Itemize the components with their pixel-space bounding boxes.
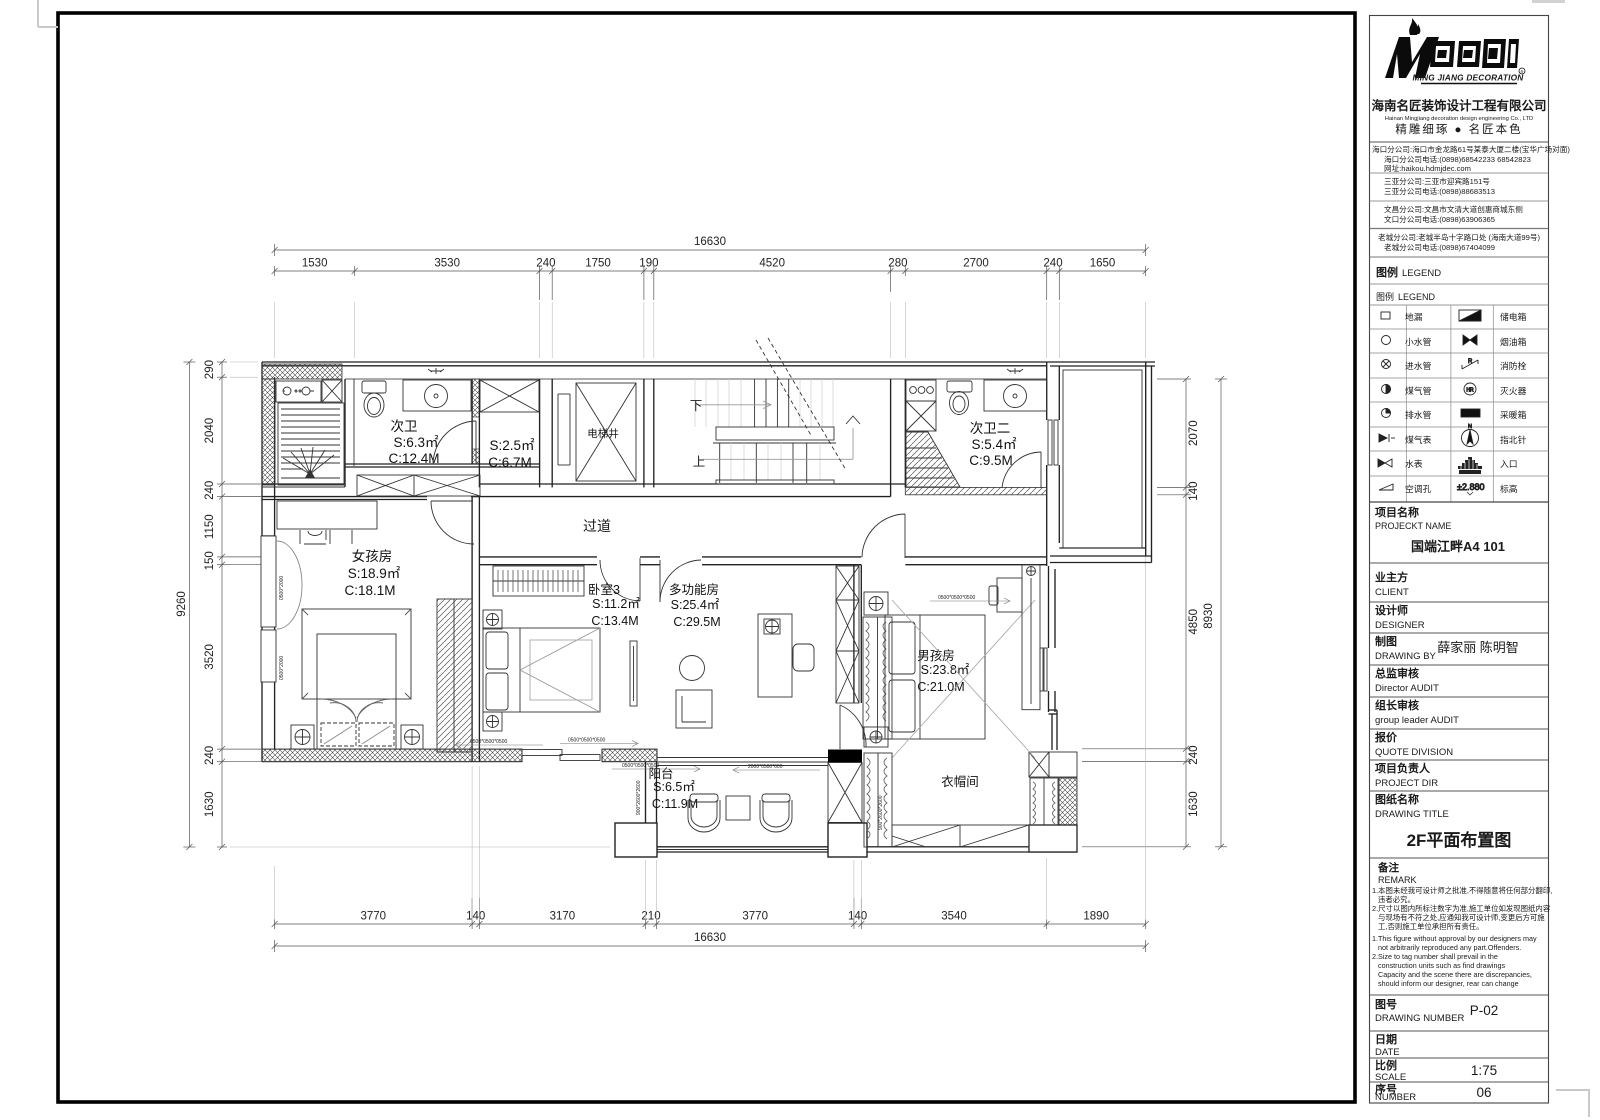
- svg-text:下: 下: [690, 399, 703, 413]
- svg-text:老城分公司电话:(0898)67404099: 老城分公司电话:(0898)67404099: [1384, 242, 1495, 252]
- svg-text:R: R: [1468, 359, 1473, 365]
- svg-text:C:6.7M: C:6.7M: [488, 455, 532, 470]
- svg-text:3770: 3770: [742, 911, 768, 923]
- svg-text:240: 240: [204, 481, 216, 500]
- svg-text:1890: 1890: [1083, 911, 1109, 923]
- svg-text:PROJECKT NAME: PROJECKT NAME: [1375, 521, 1451, 531]
- svg-text:DATE: DATE: [1375, 1047, 1400, 1058]
- svg-text:210: 210: [641, 911, 660, 923]
- svg-text:0500*2000: 0500*2000: [279, 656, 285, 680]
- svg-text:0500*0500*0500: 0500*0500*0500: [470, 739, 507, 745]
- svg-text:1630: 1630: [1188, 791, 1200, 817]
- svg-text:group leader AUDIT: group leader AUDIT: [1375, 715, 1459, 726]
- svg-text:精雕细琢 ● 名匠本色: 精雕细琢 ● 名匠本色: [1395, 122, 1522, 136]
- svg-text:16630: 16630: [694, 236, 726, 248]
- svg-text:SCALE: SCALE: [1375, 1072, 1406, 1083]
- svg-text:3520: 3520: [204, 644, 216, 670]
- svg-text:业主方: 业主方: [1375, 570, 1408, 584]
- svg-text:烟油箱: 烟油箱: [1500, 336, 1527, 347]
- svg-text:240: 240: [1188, 746, 1200, 765]
- svg-text:C:13.4M: C:13.4M: [591, 614, 638, 628]
- svg-text:入口: 入口: [1500, 459, 1518, 469]
- svg-text:HR: HR: [1466, 388, 1474, 394]
- svg-text:薛家丽 陈明智: 薛家丽 陈明智: [1437, 640, 1519, 655]
- svg-text:3540: 3540: [941, 911, 967, 923]
- svg-text:DRAWING BY: DRAWING BY: [1375, 651, 1437, 662]
- svg-text:煤气表: 煤气表: [1405, 434, 1432, 445]
- svg-text:衣帽间: 衣帽间: [941, 774, 979, 789]
- svg-text:construction units such as fin: construction units such as find drawings: [1378, 961, 1505, 970]
- svg-text:海南名匠装饰设计工程有限公司: 海南名匠装饰设计工程有限公司: [1371, 98, 1546, 113]
- svg-text:日期: 日期: [1375, 1032, 1397, 1046]
- svg-text:0500*2000: 0500*2000: [279, 576, 285, 600]
- svg-text:240: 240: [204, 746, 216, 765]
- svg-text:项目名称: 项目名称: [1375, 505, 1419, 519]
- svg-text:地漏: 地漏: [1405, 311, 1423, 322]
- svg-text:三亚分公司电话:(0898)88683513: 三亚分公司电话:(0898)88683513: [1384, 186, 1495, 196]
- svg-text:老城分公司:老城半岛十字路口处 (海南大道99号): 老城分公司:老城半岛十字路口处 (海南大道99号): [1378, 232, 1540, 242]
- svg-text:煤气管: 煤气管: [1405, 385, 1432, 396]
- svg-text:2700: 2700: [963, 258, 989, 270]
- svg-text:N: N: [1468, 424, 1472, 430]
- svg-text:违者必究。: 违者必究。: [1378, 895, 1415, 904]
- svg-text:项目负责人: 项目负责人: [1375, 761, 1431, 775]
- svg-text:设计师: 设计师: [1375, 603, 1408, 617]
- svg-text:2.Size to tag number shall pre: 2.Size to tag number shall prevail in th…: [1372, 952, 1498, 961]
- svg-text:MING JIANG DECORATION: MING JIANG DECORATION: [1413, 73, 1525, 83]
- svg-text:C:9.5M: C:9.5M: [969, 453, 1013, 468]
- svg-text:NUMBER: NUMBER: [1375, 1092, 1416, 1103]
- svg-text:S:5.4㎡: S:5.4㎡: [971, 437, 1017, 452]
- svg-text:指北针: 指北针: [1500, 434, 1527, 445]
- svg-text:8930: 8930: [1203, 603, 1215, 629]
- svg-text:Capacity and the scene there a: Capacity and the scene there are discrep…: [1378, 970, 1532, 979]
- svg-text:海口分公司:海口市金龙路61号某泰大厦二楼(宝华广场对面): 海口分公司:海口市金龙路61号某泰大厦二楼(宝华广场对面): [1372, 144, 1570, 154]
- svg-text:卧室3: 卧室3: [588, 582, 620, 597]
- svg-text:1630: 1630: [204, 792, 216, 818]
- svg-text:Director AUDIT: Director AUDIT: [1375, 683, 1439, 694]
- svg-text:文口分公司电话:(0898)63906365: 文口分公司电话:(0898)63906365: [1384, 214, 1495, 224]
- svg-text:3170: 3170: [550, 911, 576, 923]
- svg-text:三亚分公司:三亚市迎宾路151号: 三亚分公司:三亚市迎宾路151号: [1384, 176, 1490, 186]
- svg-text:网址:haikou.hdmjdec.com: 网址:haikou.hdmjdec.com: [1384, 163, 1471, 173]
- svg-text:0500*0500*0500: 0500*0500*0500: [938, 595, 975, 601]
- svg-text:图号: 图号: [1375, 998, 1397, 1011]
- svg-text:DRAWING TITLE: DRAWING TITLE: [1375, 809, 1449, 820]
- svg-text:图例: 图例: [1376, 291, 1394, 302]
- svg-text:与现场有不符之处,应通知我可设计师,变更后方可施: 与现场有不符之处,应通知我可设计师,变更后方可施: [1378, 913, 1545, 922]
- svg-text:电梯井: 电梯井: [587, 427, 619, 440]
- svg-text:240: 240: [1043, 258, 1062, 270]
- svg-text:0500*0500*0500: 0500*0500*0500: [622, 763, 659, 769]
- svg-text:上: 上: [693, 455, 706, 469]
- svg-text:1.本图未经我可设计师之批准,不得随意将任何部分翻印,: 1.本图未经我可设计师之批准,不得随意将任何部分翻印,: [1372, 886, 1552, 895]
- svg-text:S:25.4㎡: S:25.4㎡: [671, 598, 720, 612]
- svg-text:LEGEND: LEGEND: [1398, 292, 1436, 302]
- svg-text:2.尺寸以图内所标注数字为准,施工单位如发现图纸内容: 2.尺寸以图内所标注数字为准,施工单位如发现图纸内容: [1372, 904, 1551, 913]
- svg-text:国端江畔A4 101: 国端江畔A4 101: [1411, 539, 1505, 554]
- svg-text:1650: 1650: [1090, 258, 1116, 270]
- svg-text:900*2600*2600: 900*2600*2600: [878, 795, 884, 830]
- svg-text:3530: 3530: [434, 258, 460, 270]
- svg-text:DESIGNER: DESIGNER: [1375, 620, 1425, 631]
- svg-text:储电箱: 储电箱: [1500, 311, 1527, 322]
- svg-text:多功能房: 多功能房: [669, 582, 719, 597]
- svg-text:灭火器: 灭火器: [1500, 386, 1527, 396]
- svg-text:REMARK: REMARK: [1378, 875, 1417, 885]
- svg-text:组长审核: 组长审核: [1375, 698, 1419, 712]
- svg-text:140: 140: [466, 911, 485, 923]
- svg-text:1:75: 1:75: [1471, 1063, 1497, 1078]
- svg-text:0500*0500*0500: 0500*0500*0500: [568, 738, 605, 744]
- svg-text:LEGEND: LEGEND: [1402, 268, 1441, 279]
- svg-text:小水管: 小水管: [1405, 336, 1432, 347]
- svg-text:P-02: P-02: [1470, 1003, 1499, 1018]
- svg-text:S:11.2㎡: S:11.2㎡: [592, 597, 640, 611]
- svg-text:次卫二: 次卫二: [970, 421, 1011, 436]
- svg-text:Hainan Mingjiang decoration de: Hainan Mingjiang decoration design engin…: [1385, 116, 1533, 122]
- svg-text:图例: 图例: [1376, 265, 1398, 279]
- svg-text:06: 06: [1476, 1085, 1491, 1100]
- svg-text:消防栓: 消防栓: [1500, 360, 1527, 371]
- svg-text:总监审核: 总监审核: [1375, 666, 1419, 680]
- svg-text:S:6.3㎡: S:6.3㎡: [393, 435, 439, 450]
- svg-text:1150: 1150: [204, 514, 216, 539]
- svg-text:2F平面布置图: 2F平面布置图: [1407, 830, 1512, 850]
- svg-text:16630: 16630: [694, 932, 726, 944]
- svg-text:进水管: 进水管: [1405, 360, 1432, 371]
- svg-text:男孩房: 男孩房: [917, 648, 955, 663]
- svg-text:工,否则施工单位承担所有责任。: 工,否则施工单位承担所有责任。: [1378, 922, 1484, 931]
- svg-text:290: 290: [204, 360, 216, 379]
- svg-text:制图: 制图: [1375, 634, 1397, 648]
- svg-text:S:2.5㎡: S:2.5㎡: [489, 438, 535, 453]
- svg-text:比例: 比例: [1375, 1058, 1397, 1072]
- svg-text:备注: 备注: [1377, 861, 1400, 874]
- svg-text:过道: 过道: [583, 518, 611, 534]
- svg-text:CLIENT: CLIENT: [1375, 587, 1409, 598]
- svg-text:报价: 报价: [1375, 730, 1398, 744]
- svg-text:9260: 9260: [176, 591, 188, 617]
- svg-text:C:12.4M: C:12.4M: [388, 451, 439, 466]
- svg-text:280: 280: [888, 258, 907, 270]
- svg-text:S:18.9㎡: S:18.9㎡: [348, 566, 401, 581]
- svg-text:not arbitrarily reproduced any: not arbitrarily reproduced any part.Offe…: [1378, 943, 1521, 952]
- svg-text:150: 150: [204, 551, 216, 570]
- svg-text:标高: 标高: [1500, 483, 1518, 494]
- svg-text:C:21.0M: C:21.0M: [917, 680, 964, 694]
- svg-text:S:23.8㎡: S:23.8㎡: [921, 663, 970, 677]
- svg-text:排水管: 排水管: [1405, 409, 1432, 420]
- svg-text:900*2600*2600: 900*2600*2600: [636, 780, 642, 815]
- svg-text:图纸名称: 图纸名称: [1375, 792, 1419, 806]
- svg-text:空调孔: 空调孔: [1405, 483, 1432, 494]
- svg-text:240: 240: [536, 258, 555, 270]
- svg-text:140: 140: [848, 911, 867, 923]
- svg-text:190: 190: [639, 258, 658, 270]
- svg-text:海口分公司电话:(0898)68542233 6854282: 海口分公司电话:(0898)68542233 68542823: [1384, 154, 1531, 164]
- svg-text:4850: 4850: [1188, 609, 1200, 635]
- svg-text:1.This figure without approval: 1.This figure without approval by our de…: [1372, 934, 1537, 943]
- svg-text:±2.880: ±2.880: [1457, 482, 1484, 492]
- svg-text:4520: 4520: [759, 258, 785, 270]
- svg-text:次卫: 次卫: [391, 419, 418, 434]
- svg-text:QUOTE DIVISION: QUOTE DIVISION: [1375, 747, 1453, 758]
- svg-text:C:18.1M: C:18.1M: [344, 583, 395, 598]
- svg-text:ENTRANCE: ENTRANCE: [1461, 470, 1479, 474]
- svg-text:2000*0500*000: 2000*0500*000: [748, 764, 783, 770]
- svg-text:C:29.5M: C:29.5M: [673, 615, 720, 629]
- svg-text:文昌分公司:文昌市文清大道创惠商城东侧: 文昌分公司:文昌市文清大道创惠商城东侧: [1384, 204, 1523, 214]
- svg-text:2040: 2040: [204, 418, 216, 444]
- svg-text:140: 140: [1188, 482, 1200, 501]
- svg-text:2070: 2070: [1188, 420, 1200, 446]
- svg-text:水表: 水表: [1405, 458, 1423, 469]
- svg-text:采暖箱: 采暖箱: [1500, 409, 1527, 420]
- svg-text:女孩房: 女孩房: [352, 548, 393, 564]
- svg-text:should inform our designer, re: should inform our designer, rear can cha…: [1378, 979, 1519, 988]
- svg-text:3770: 3770: [361, 911, 387, 923]
- svg-text:S:6.5㎡: S:6.5㎡: [653, 780, 695, 794]
- svg-text:PROJECT DIR: PROJECT DIR: [1375, 778, 1438, 789]
- svg-text:1750: 1750: [585, 258, 611, 270]
- svg-text:1530: 1530: [302, 258, 328, 270]
- svg-text:DRAWING NUMBER: DRAWING NUMBER: [1375, 1013, 1465, 1024]
